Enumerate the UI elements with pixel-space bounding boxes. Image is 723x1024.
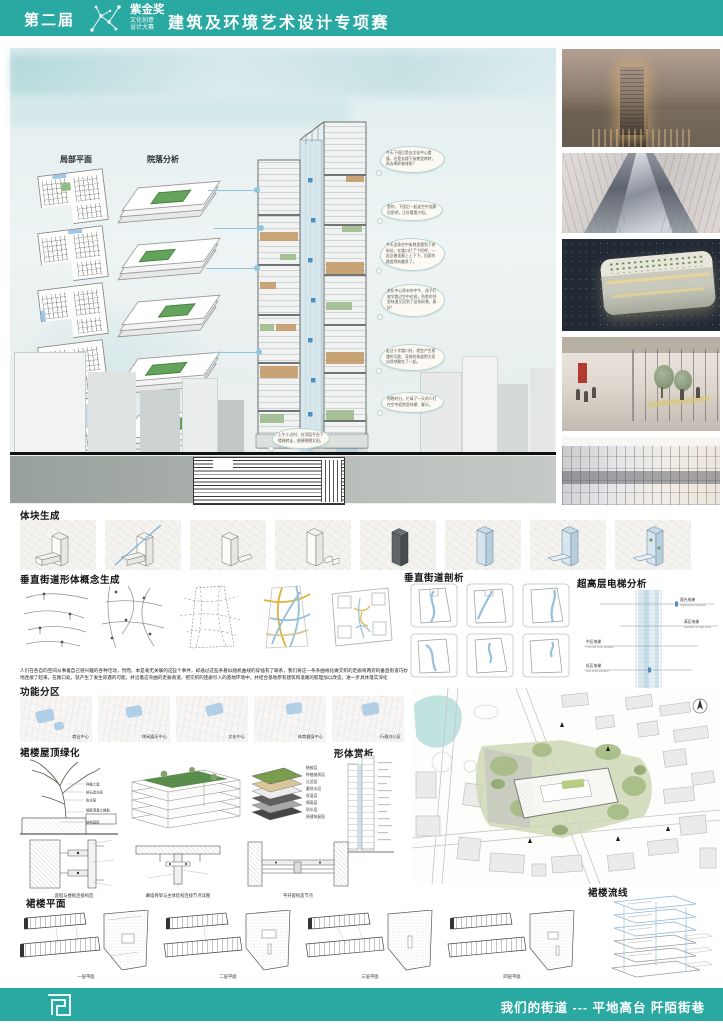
- street-section-tile: [466, 583, 514, 628]
- street-section-tile: [522, 583, 570, 628]
- street-section-title: 垂直街道剖析: [404, 570, 464, 584]
- podium-plan-group: 四层平面: [444, 910, 580, 984]
- connector-dot: [254, 265, 260, 271]
- podium-plan-group: 三层平面: [302, 910, 438, 984]
- texture: [321, 460, 342, 502]
- texture: [77, 317, 103, 334]
- elevator-label: 中区电梯: [586, 639, 601, 644]
- plan-label: 四层平面: [444, 974, 580, 980]
- concept-sketch-2: [98, 584, 168, 650]
- texture: [158, 303, 196, 318]
- concept-sketch-4: [250, 584, 320, 650]
- master-site-plan: [412, 688, 720, 884]
- red-sign: [578, 363, 587, 383]
- texture: [606, 272, 710, 284]
- podium-plan-drawing: [160, 910, 296, 974]
- podium-plan-drawing: [444, 910, 580, 974]
- tower-elevation-drawing: [250, 114, 374, 458]
- function-zone-diagram: 商业中心: [20, 696, 92, 742]
- tree-detail-label: 钢筋混凝土楼板: [86, 808, 110, 813]
- massing-block: [360, 520, 436, 570]
- courtyard-axon-diagram: [122, 176, 210, 222]
- zijin-award-logo-icon: [86, 2, 128, 34]
- texture: [10, 54, 556, 96]
- texture: [285, 702, 302, 715]
- texture: [77, 203, 103, 220]
- texture: [608, 254, 705, 274]
- massing-step-diagram: [530, 520, 606, 570]
- dialogue-bubble: 今天下班后是去文化中心看展，还是去楼下街巷里转转，再去喝杯咖啡呢？: [380, 146, 445, 173]
- sketch: [410, 583, 458, 628]
- concept-sketch-3: [174, 584, 244, 650]
- connector-dot: [254, 187, 260, 193]
- massing-block: [20, 520, 96, 570]
- podium-circulation-axon: [598, 894, 714, 986]
- connector-line: [214, 228, 262, 229]
- dialogue-bubble: 今天这条空中街巷里遇到了老街坊，在路口打了个招呼，一起沿着连廊上上下下，回家的路…: [380, 238, 445, 271]
- city-building: [182, 378, 218, 455]
- sketch: [250, 584, 320, 650]
- massing-block: [615, 520, 691, 570]
- massing-block: [445, 520, 521, 570]
- elevator-section-title: 超高层电梯分析: [577, 576, 647, 590]
- header-bar: 第二届 紫金奖 文化创意 设计大赛 建筑及环境艺术设计专项赛: [0, 0, 723, 36]
- massing-step-diagram: [360, 520, 436, 570]
- function-zone-diagram: 休闲娱乐中心: [98, 696, 170, 742]
- texture: [613, 287, 705, 298]
- dialogue-bubble: 走过十字路口处，就会产生相遇的可能，弯曲的甬道把大家自然地聚在了一起。: [380, 344, 445, 371]
- courtyard-axon-diagram: [122, 290, 210, 336]
- massing-block: [105, 520, 181, 570]
- city-building: [14, 352, 86, 455]
- zone-label: 休闲娱乐中心: [142, 734, 167, 740]
- texture: [125, 705, 143, 719]
- massing-step-diagram: [275, 520, 351, 570]
- sketch: [98, 584, 168, 650]
- elevator-analysis-diagram: 观光电梯 Sightseeing elevator 高区电梯 Elevator …: [580, 590, 720, 688]
- texture: [213, 458, 233, 470]
- green-roof-layer-stack: [246, 764, 306, 826]
- tree-detail-label: 结构基层: [86, 820, 100, 825]
- texture: [562, 471, 720, 484]
- sketch: [22, 584, 92, 650]
- massing-step-diagram: [190, 520, 266, 570]
- texture: [592, 129, 692, 147]
- partial-plan-label: 局部平面: [60, 154, 92, 165]
- studio-seal-logo-icon: [45, 992, 73, 1018]
- function-zone-diagram: 文化中心: [176, 696, 248, 742]
- detail-curtainwall-frame: [130, 840, 228, 890]
- elevator-label: 高区电梯: [684, 619, 699, 624]
- sketch: [410, 633, 458, 678]
- award-sub2: 设计大赛: [130, 25, 154, 32]
- elevator-label-en: Elevator for high zone: [684, 625, 712, 629]
- tree-detail-label: 种植土壤: [86, 782, 100, 787]
- massing-step-diagram: [615, 520, 691, 570]
- texture: [74, 289, 101, 316]
- podium-plan-drawing: [302, 910, 438, 974]
- courtyard-axon-diagram: [122, 233, 210, 279]
- tree-planting-detail: 种植土壤 卵石滤水层 防水层 钢筋混凝土楼板 结构基层: [20, 756, 120, 838]
- elevator-label-en: Low zone elevator: [586, 669, 609, 673]
- city-building: [140, 390, 180, 453]
- tree-detail-label: 防水层: [86, 798, 97, 803]
- award-sub1: 文化创意: [130, 18, 154, 25]
- podium-plan-group: 二层平面: [160, 910, 296, 984]
- terrace-tree: [674, 370, 692, 391]
- texture: [150, 190, 191, 205]
- texture: [61, 182, 71, 191]
- plan-label: 一层平面: [18, 974, 154, 980]
- person-silhouette: [584, 391, 588, 402]
- elevator-label-en: Sightseeing elevator: [680, 603, 705, 607]
- render-photo-sky-terrace: [562, 337, 720, 431]
- zone-label: 体育健身中心: [298, 734, 323, 740]
- person-silhouette: [696, 387, 700, 398]
- sketch: [522, 583, 570, 628]
- podium-green-roof-axon: [126, 760, 248, 834]
- texture: [42, 293, 69, 320]
- podium-plans-title: 裙楼平面: [26, 896, 66, 910]
- texture: [42, 236, 69, 263]
- elevator-label: 观光电梯: [680, 597, 695, 602]
- plan-label: 三层平面: [302, 974, 438, 980]
- massing-step-diagram: [20, 520, 96, 570]
- podium-model: [600, 250, 716, 316]
- tree-detail-label: 卵石滤水层: [86, 790, 104, 795]
- city-building: [498, 384, 528, 453]
- texture: [562, 437, 720, 446]
- texture: [138, 248, 176, 262]
- city-building: [530, 368, 554, 453]
- city-building: [88, 372, 136, 453]
- podium-plan-drawing: [18, 910, 154, 974]
- sketch: [466, 583, 514, 628]
- street-section-tile: [466, 633, 514, 678]
- texture: [145, 362, 188, 376]
- dialogue-bubble: 文化中心周末的中午，孩子们放学路过空中花园，熟悉的邻里味道又回到了这条街巷，真好…: [381, 284, 445, 317]
- connector-line: [206, 268, 258, 269]
- street-section-tile: [410, 633, 458, 678]
- texture: [77, 260, 103, 277]
- detail-caption: 幕墙骨架与主体结构连接节点详图: [126, 893, 230, 899]
- elevator-label-en: The mid zone elevator: [586, 645, 614, 649]
- texture: [205, 702, 224, 717]
- sketch: [326, 584, 396, 650]
- page-title: 建筑及环境艺术设计专项赛: [168, 9, 390, 33]
- elevator-label: 低区电梯: [586, 663, 601, 668]
- massing-step-diagram: [105, 520, 181, 570]
- person-silhouette: [680, 389, 684, 400]
- detail-casement-window: [246, 838, 350, 890]
- massing-block: [275, 520, 351, 570]
- detail-caption: 平开窗构造节点: [246, 893, 350, 899]
- connector-line: [212, 352, 260, 353]
- texture: [361, 702, 380, 717]
- detail-mullion-slab: [28, 836, 120, 892]
- glowing-tower: [620, 67, 644, 135]
- award-name: 紫金奖: [130, 5, 165, 17]
- street-section-tile: [410, 583, 458, 628]
- texture: [53, 721, 64, 730]
- texture: [660, 153, 720, 233]
- function-zone-diagram: 体育健身中心: [254, 696, 326, 742]
- city-building: [218, 400, 244, 453]
- concept-sketch-5: [326, 584, 396, 650]
- texture: [562, 153, 625, 233]
- project-slogan: 我们的街道 --- 平地高台 阡陌街巷: [501, 997, 705, 1016]
- sketch: [174, 584, 244, 650]
- plan-label: 二层平面: [160, 974, 296, 980]
- connector-dot: [256, 349, 262, 355]
- person-silhouette: [592, 387, 596, 398]
- render-photo-facade-canyon: [562, 153, 720, 233]
- basement-section-drawing: [193, 457, 345, 505]
- concept-sketch-1: [22, 584, 92, 650]
- street-section-tile: [522, 633, 570, 678]
- texture: [35, 708, 55, 723]
- zone-label: 文化中心: [228, 734, 245, 740]
- person-silhouette: [576, 389, 580, 400]
- function-zone-diagram: 行政办公区: [332, 696, 404, 742]
- render-photo-night-aerial: [562, 239, 720, 331]
- competition-poster: 第二届 紫金奖 文化创意 设计大赛 建筑及环境艺术设计专项赛 局部平面 院落分析: [0, 0, 723, 1024]
- concept-narrative-text: 人们在各自的空间从事着自己感兴趣的各种活动，然而，本是毫无关联的这些个事件，却通…: [20, 667, 408, 681]
- zone-label: 行政办公区: [380, 734, 401, 740]
- texture: [74, 232, 101, 259]
- edition-label: 第二届: [24, 9, 75, 30]
- render-photo-atrium: [562, 437, 720, 505]
- courtyard-analysis-label: 院落分析: [147, 154, 179, 165]
- footer-bar: 我们的街道 --- 平地高台 阡陌街巷: [0, 988, 723, 1021]
- sketch: [522, 633, 570, 678]
- podium-plan-group: 一层平面: [18, 910, 154, 984]
- render-photo-city-dusk: [562, 49, 720, 147]
- connector-dot: [258, 225, 264, 231]
- city-building: [462, 356, 498, 455]
- massing-block: [530, 520, 606, 570]
- zone-label: 商业中心: [72, 734, 89, 740]
- terrace-tree: [654, 365, 674, 389]
- city-building: [420, 372, 462, 455]
- texture: [74, 175, 101, 202]
- sketch: [466, 633, 514, 678]
- connector-line: [208, 190, 258, 191]
- texture: [661, 387, 663, 398]
- massing-step-diagram: [445, 520, 521, 570]
- massing-block: [190, 520, 266, 570]
- ground-line: [10, 452, 556, 455]
